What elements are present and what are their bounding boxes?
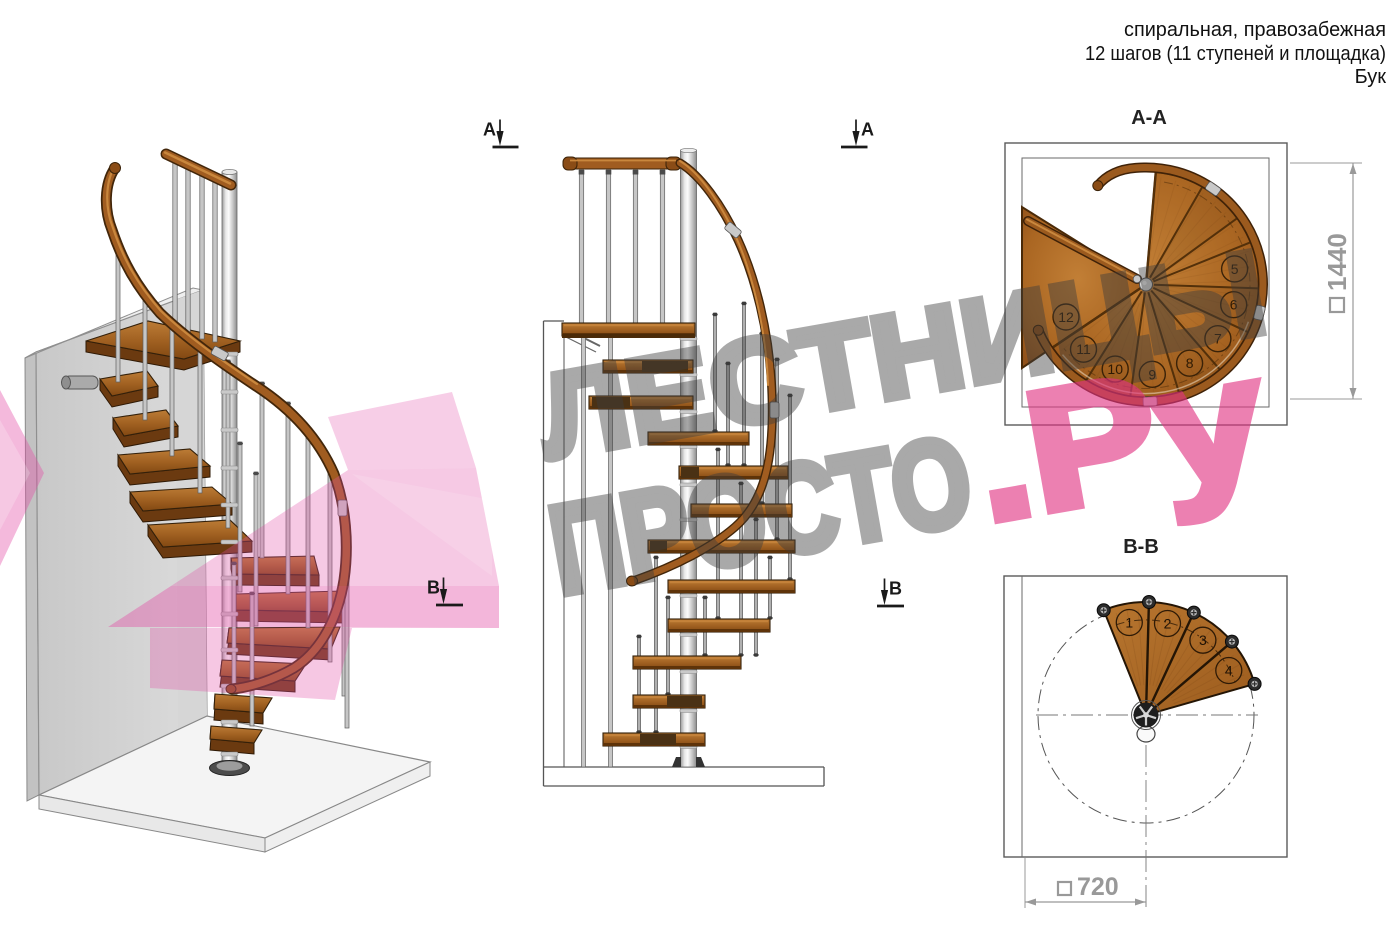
svg-text:А-А: А-А [1131,107,1167,129]
svg-text:3: 3 [1199,632,1207,648]
svg-text:В: В [427,578,440,598]
svg-text:12 шагов (11 ступеней и площад: 12 шагов (11 ступеней и площадка) [1085,43,1386,65]
svg-text:2: 2 [1164,616,1172,632]
svg-text:4: 4 [1225,663,1233,679]
svg-text:1440: 1440 [1322,233,1352,291]
svg-text:A: A [861,120,874,140]
svg-text:спиральная, правозабежная: спиральная, правозабежная [1124,19,1386,41]
svg-text:1: 1 [1125,615,1133,631]
svg-text:720: 720 [1077,873,1119,901]
svg-text:В: В [889,579,902,599]
svg-text:В-В: В-В [1123,536,1159,558]
svg-text:Бук: Бук [1355,66,1387,88]
svg-text:А: А [483,120,496,140]
